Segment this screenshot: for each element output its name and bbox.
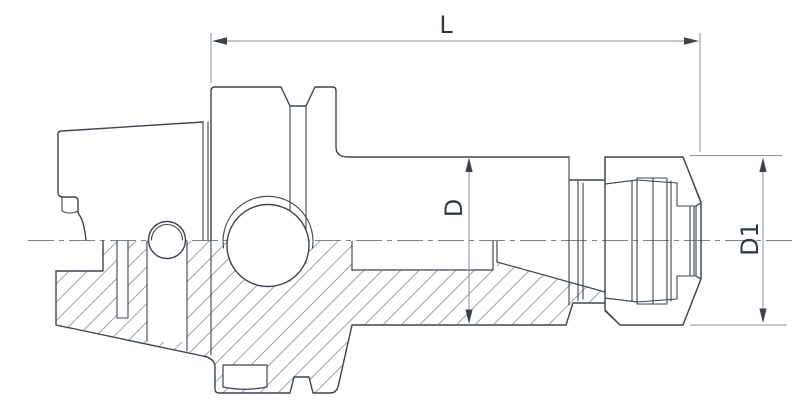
hsk-taper-shank [58,122,203,240]
arrowhead-down [759,309,766,324]
dimension-L: L [211,11,700,152]
dimension-label-D: D [440,199,468,217]
dimension-label-D1: D1 [736,222,764,256]
arrowhead-left [212,37,227,44]
coolant-bore-void [352,240,497,270]
shank-face-notch [62,197,78,213]
arrowhead-up [465,158,472,173]
technical-drawing: L D D1 [0,0,812,417]
technical-drawing-canvas: L D D1 [0,0,812,417]
taper-end-faces [203,122,208,240]
shank-slot-void [117,240,128,318]
dimension-label-L: L [439,11,453,39]
key-slot-void [223,365,267,389]
arrowhead-right [684,37,699,44]
arrowhead-up [759,158,766,173]
